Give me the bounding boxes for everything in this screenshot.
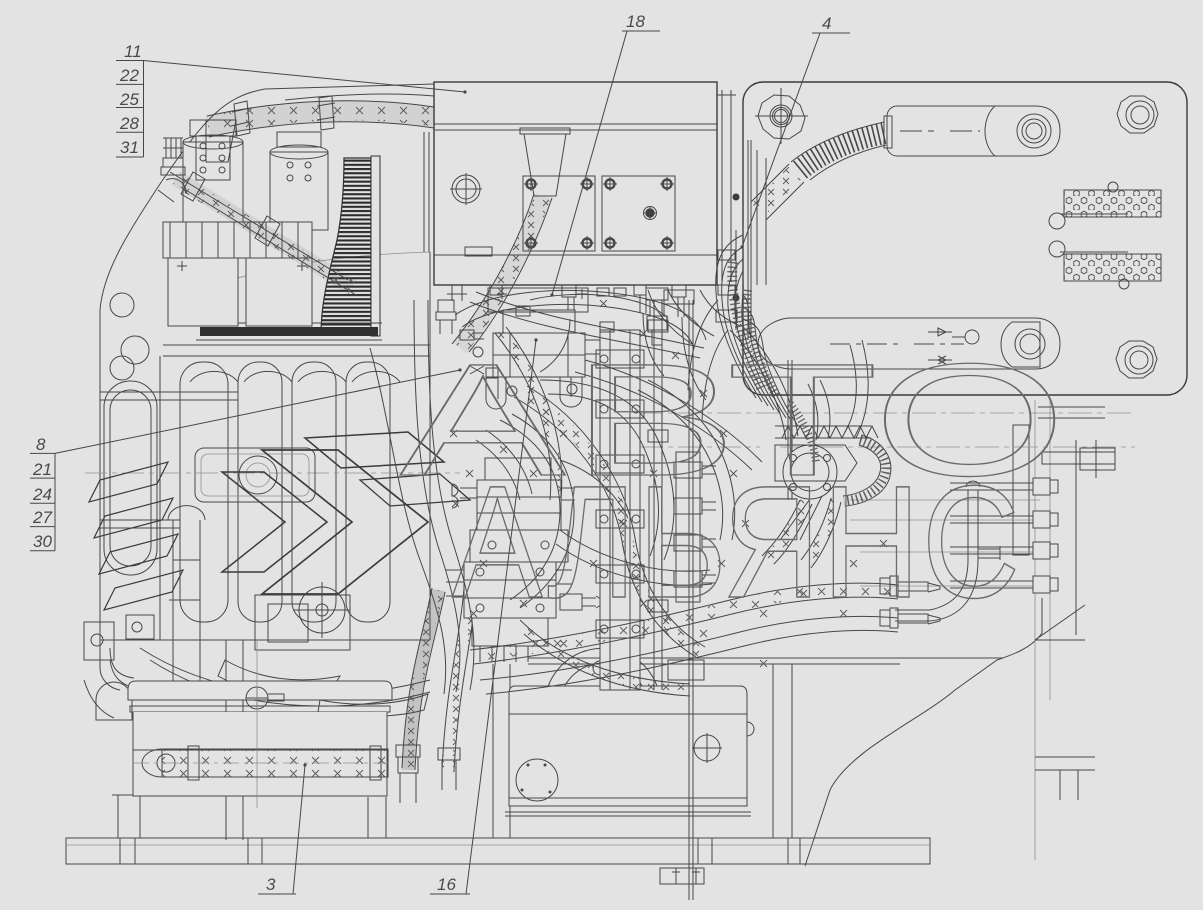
- svg-text:11: 11: [124, 42, 142, 61]
- svg-text:28: 28: [119, 114, 139, 133]
- svg-text:30: 30: [33, 532, 52, 551]
- svg-text:27: 27: [32, 508, 52, 527]
- svg-text:31: 31: [120, 138, 139, 157]
- svg-text:16: 16: [437, 875, 456, 894]
- svg-text:4: 4: [822, 14, 831, 33]
- svg-text:18: 18: [626, 12, 645, 31]
- svg-text:25: 25: [119, 90, 139, 109]
- svg-text:АЛЬЯНС: АЛЬЯНС: [452, 454, 1022, 632]
- svg-text:24: 24: [32, 485, 52, 504]
- svg-text:21: 21: [32, 460, 52, 479]
- svg-text:22: 22: [119, 66, 139, 85]
- svg-text:8: 8: [36, 435, 46, 454]
- svg-text:3: 3: [266, 875, 276, 894]
